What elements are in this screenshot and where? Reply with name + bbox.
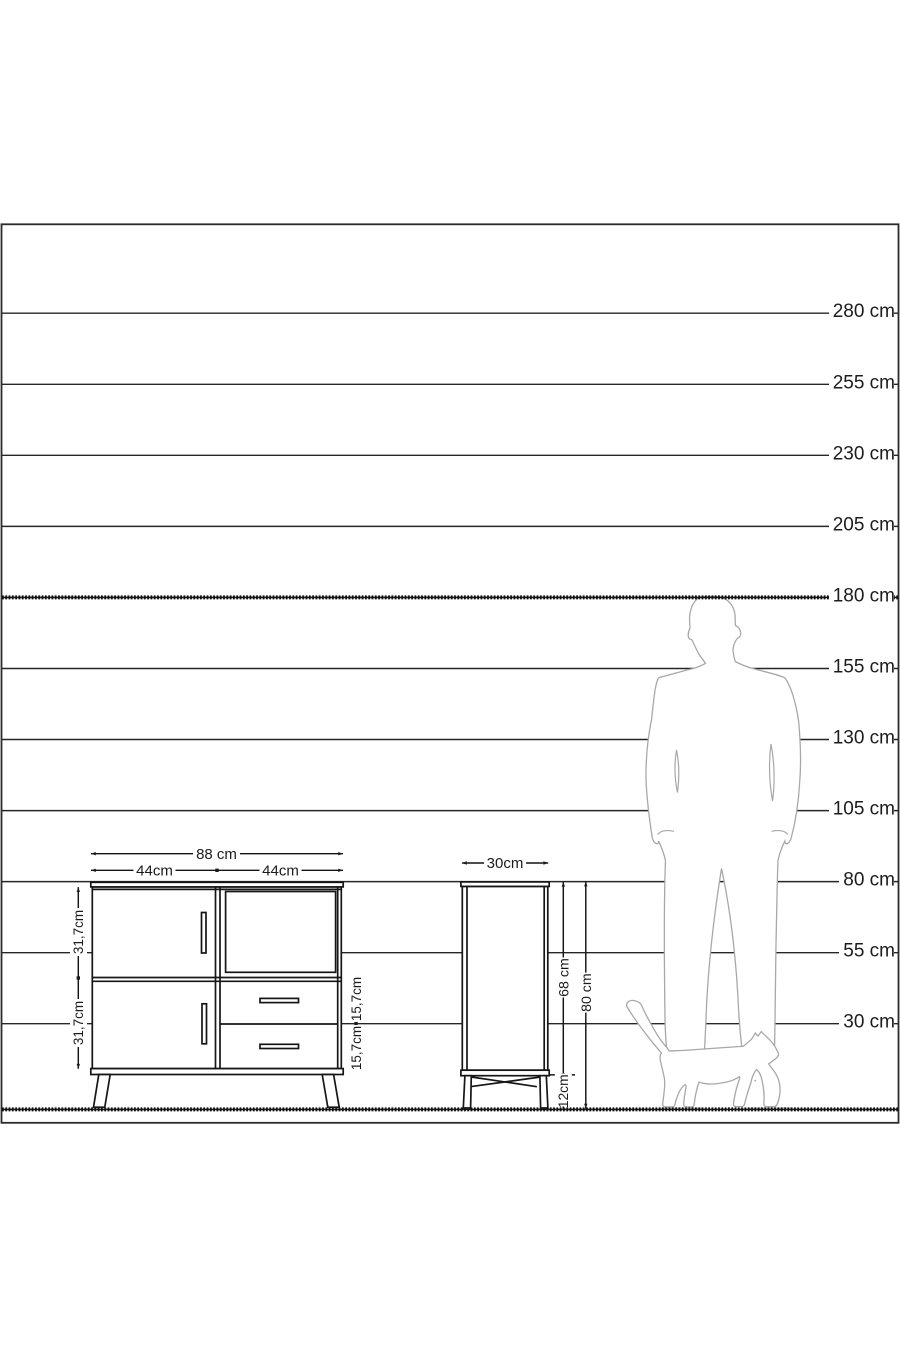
svg-text:130 cm: 130 cm — [833, 728, 895, 749]
svg-text:12cm: 12cm — [556, 1074, 571, 1108]
svg-text:68 cm: 68 cm — [556, 958, 572, 997]
svg-text:44cm: 44cm — [262, 863, 299, 880]
svg-text:105 cm: 105 cm — [833, 799, 895, 820]
svg-text:44cm: 44cm — [136, 863, 173, 880]
svg-text:230 cm: 230 cm — [833, 443, 895, 464]
svg-text:15,7cm: 15,7cm — [349, 1026, 364, 1070]
svg-text:205 cm: 205 cm — [833, 514, 895, 535]
svg-text:88 cm: 88 cm — [196, 846, 237, 863]
svg-text:55 cm: 55 cm — [843, 941, 895, 962]
svg-text:30 cm: 30 cm — [843, 1012, 895, 1033]
svg-text:31,7cm: 31,7cm — [71, 910, 86, 954]
svg-text:255 cm: 255 cm — [833, 372, 895, 393]
svg-text:280 cm: 280 cm — [833, 301, 895, 322]
svg-text:15,7cm: 15,7cm — [349, 977, 364, 1021]
svg-text:31,7cm: 31,7cm — [71, 1001, 86, 1045]
svg-text:180 cm: 180 cm — [833, 585, 895, 606]
svg-text:80 cm: 80 cm — [843, 870, 895, 891]
svg-text:80 cm: 80 cm — [579, 973, 595, 1012]
svg-text:155 cm: 155 cm — [833, 657, 895, 678]
svg-text:30cm: 30cm — [487, 855, 524, 872]
